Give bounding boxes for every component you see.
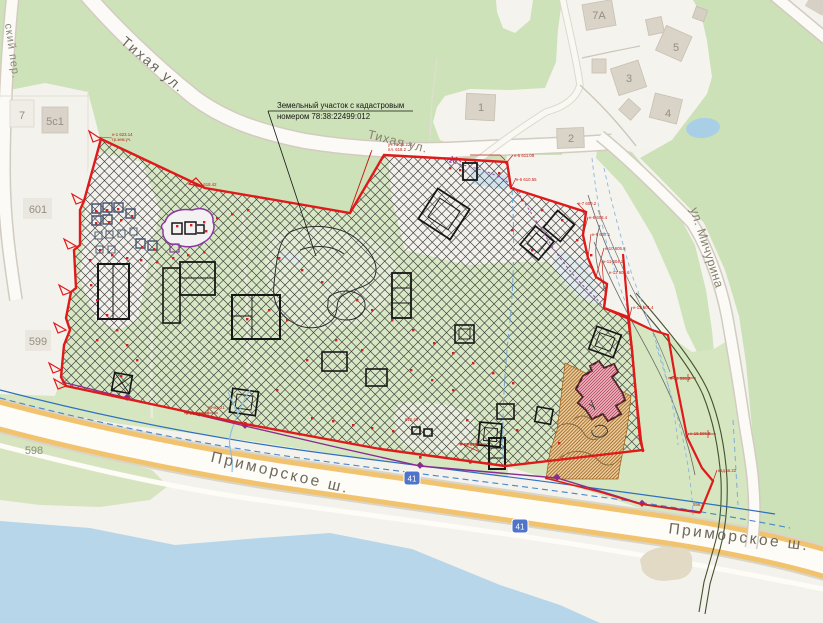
svg-text:1: 1	[478, 102, 484, 114]
svg-text:599: 599	[29, 336, 47, 348]
svg-text:3: 3	[626, 73, 632, 85]
svg-text:номером 78:38:22499:012: номером 78:38:22499:012	[277, 112, 370, 121]
svg-text:7: 7	[19, 110, 25, 122]
svg-text:5с1: 5с1	[46, 116, 64, 128]
svg-text:612.40: 612.40	[405, 417, 419, 422]
svg-text:н-7 609.2: н-7 609.2	[578, 201, 597, 206]
svg-text:5: 5	[673, 42, 679, 54]
svg-text:596.2: 596.2	[693, 502, 704, 507]
svg-text:н-9 607.1: н-9 607.1	[592, 232, 611, 237]
svg-text:41: 41	[516, 523, 525, 532]
svg-text:н-2 618.42: н-2 618.42	[196, 182, 217, 187]
svg-text:601: 601	[29, 204, 47, 216]
svg-text:гр.зем.уч.: гр.зем.уч.	[112, 137, 131, 142]
svg-text:2: 2	[568, 133, 574, 145]
svg-text:н-13 601.4: н-13 601.4	[633, 305, 654, 310]
svg-text:598: 598	[25, 445, 43, 457]
svg-text:7А: 7А	[592, 10, 606, 22]
svg-text:н-5 611.08: н-5 611.08	[514, 153, 535, 158]
svg-text:н-12 603.6: н-12 603.6	[609, 270, 630, 275]
svg-text:Земельный участок с кадастровы: Земельный участок с кадастровым	[277, 101, 404, 110]
svg-text:кад.кв.22: кад.кв.22	[718, 468, 737, 473]
svg-text:точка 21: точка 21	[208, 405, 225, 410]
svg-text:н-6 610.55: н-6 610.55	[516, 177, 537, 182]
svg-text:н-11 604.2: н-11 604.2	[603, 259, 624, 264]
svg-text:41: 41	[408, 475, 417, 484]
svg-text:н-8 608.4: н-8 608.4	[589, 215, 608, 220]
svg-text:н-10 605.8: н-10 605.8	[605, 246, 626, 251]
svg-text:4: 4	[665, 108, 671, 120]
